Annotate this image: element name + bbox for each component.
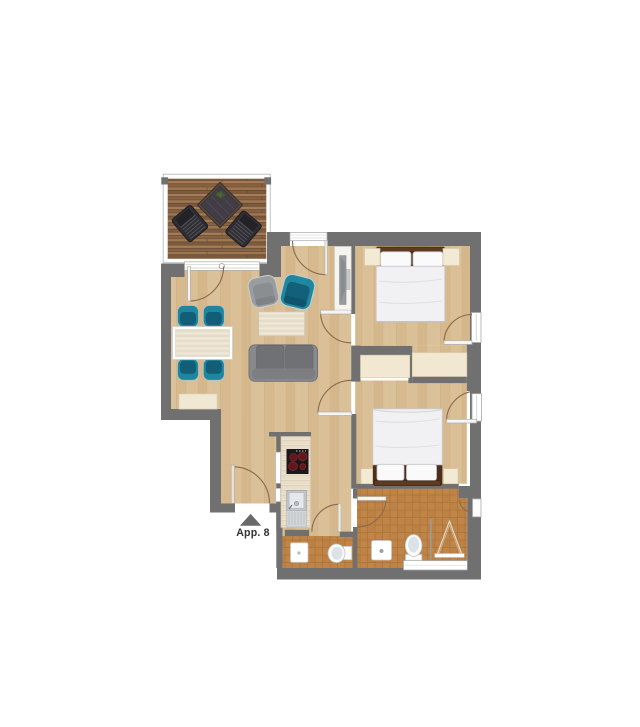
svg-text:App. 8: App. 8 [236,527,270,539]
